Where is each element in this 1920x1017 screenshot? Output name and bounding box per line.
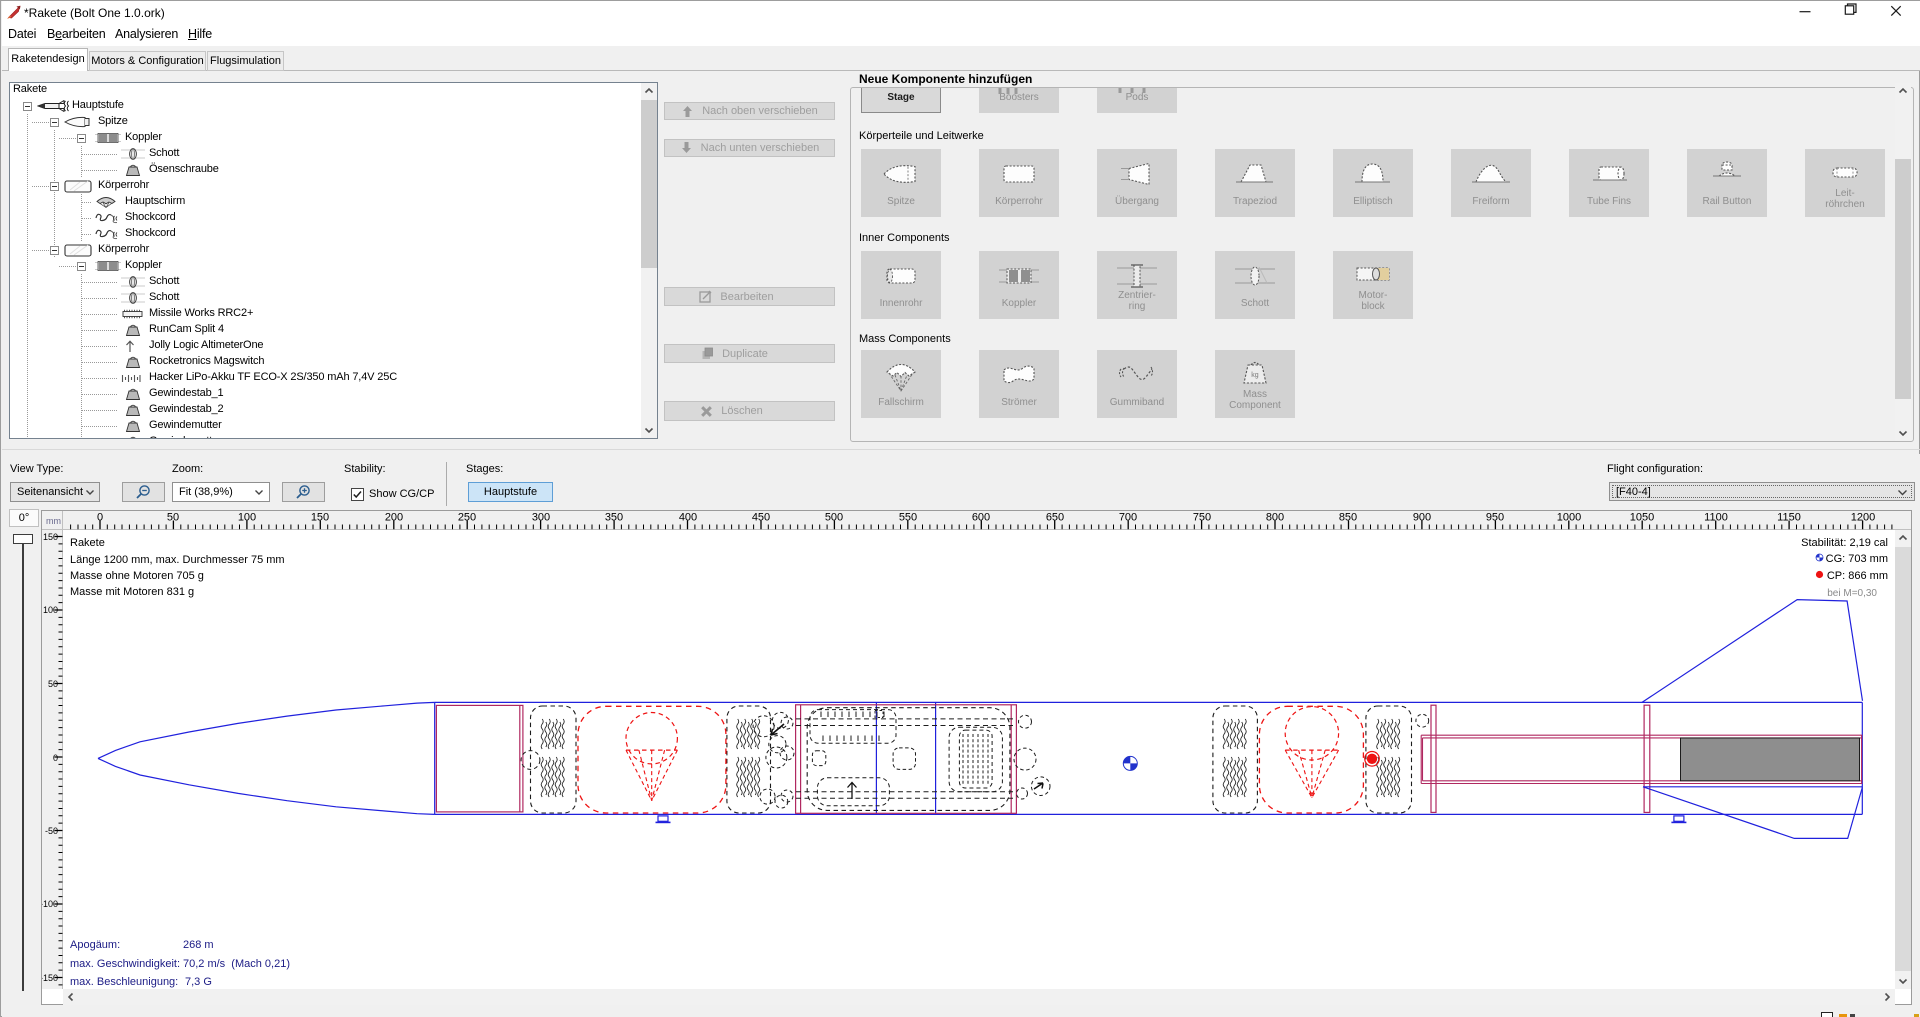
svg-text:900: 900: [1413, 512, 1431, 524]
svg-text:500: 500: [825, 512, 843, 524]
svg-text:400: 400: [679, 512, 697, 524]
svg-text:250: 250: [458, 512, 476, 524]
svg-text:bei M=0,30: bei M=0,30: [1827, 588, 1877, 599]
svg-text:750: 750: [1193, 512, 1211, 524]
svg-text:CP: 866 mm: CP: 866 mm: [1827, 570, 1888, 582]
svg-text:800: 800: [1266, 512, 1284, 524]
svg-text:450: 450: [752, 512, 770, 524]
svg-text:1200: 1200: [1851, 512, 1875, 524]
svg-text:150: 150: [311, 512, 329, 524]
svg-text:1100: 1100: [1704, 512, 1728, 524]
svg-text:Rakete: Rakete: [70, 537, 105, 549]
svg-text:550: 550: [899, 512, 917, 524]
svg-text:kg: kg: [1251, 372, 1259, 379]
svg-text:-100: -100: [42, 899, 58, 909]
svg-text:1050: 1050: [1630, 512, 1654, 524]
svg-text:CG: 703 mm: CG: 703 mm: [1826, 553, 1888, 565]
svg-text:Länge 1200 mm, max. Durchmesse: Länge 1200 mm, max. Durchmesser 75 mm: [70, 554, 285, 566]
svg-text:600: 600: [972, 512, 990, 524]
svg-text:1150: 1150: [1777, 512, 1801, 524]
svg-text:Stabilität: 2,19 cal: Stabilität: 2,19 cal: [1801, 537, 1888, 549]
svg-text:Masse ohne Motoren 705 g: Masse ohne Motoren 705 g: [70, 570, 204, 582]
svg-text:max. Beschleunigung:: max. Beschleunigung:: [70, 976, 178, 988]
svg-text:0: 0: [53, 753, 58, 763]
svg-text:268 m: 268 m: [183, 939, 214, 951]
svg-text:-150: -150: [42, 973, 58, 983]
svg-text:950: 950: [1486, 512, 1504, 524]
svg-text:100: 100: [238, 512, 256, 524]
svg-text:max. Geschwindigkeit:: max. Geschwindigkeit:: [70, 958, 180, 970]
svg-text:7,3 G: 7,3 G: [185, 976, 212, 988]
svg-text:700: 700: [1119, 512, 1137, 524]
svg-text:0: 0: [97, 512, 103, 524]
svg-text:-50: -50: [45, 826, 58, 836]
svg-text:mm: mm: [46, 516, 61, 526]
svg-text:650: 650: [1046, 512, 1064, 524]
svg-text:Masse mit Motoren 831 g: Masse mit Motoren 831 g: [70, 586, 194, 598]
svg-text:300: 300: [532, 512, 550, 524]
svg-text:350: 350: [605, 512, 623, 524]
svg-text:150: 150: [43, 532, 58, 542]
svg-text:Apogäum:: Apogäum:: [70, 939, 120, 951]
svg-text:850: 850: [1339, 512, 1357, 524]
svg-text:200: 200: [385, 512, 403, 524]
svg-text:50: 50: [167, 512, 179, 524]
svg-text:70,2 m/s (Mach 0,21): 70,2 m/s (Mach 0,21): [183, 958, 290, 970]
svg-text:50: 50: [48, 679, 58, 689]
svg-text:100: 100: [43, 605, 58, 615]
svg-text:1000: 1000: [1557, 512, 1581, 524]
